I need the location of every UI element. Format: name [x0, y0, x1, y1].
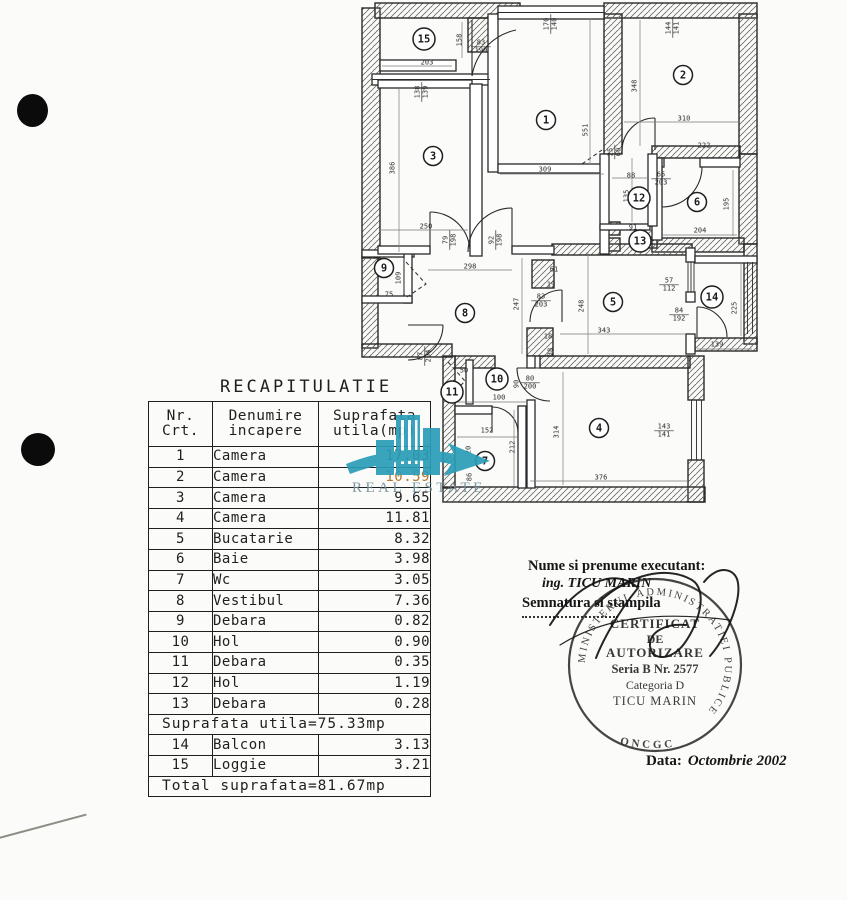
- svg-text:203: 203: [655, 179, 668, 187]
- svg-text:5: 5: [610, 297, 616, 309]
- dimension-label: 248: [578, 300, 586, 313]
- dimension-label: 212: [509, 441, 517, 454]
- cell-nr: 8: [149, 591, 213, 612]
- room-number-badge: 1: [537, 111, 556, 130]
- header-nr-line1: Nr.: [167, 408, 195, 424]
- svg-text:343: 343: [598, 327, 611, 335]
- svg-text:1: 1: [543, 115, 549, 127]
- cell-name: Hol: [213, 673, 319, 694]
- cell-area: 17.03: [319, 447, 431, 468]
- svg-text:15: 15: [418, 34, 431, 46]
- svg-text:83: 83: [537, 293, 545, 301]
- cell-area: 0.90: [319, 632, 431, 653]
- header-denumire-line2: incapere: [229, 423, 303, 439]
- dimension-label: 20: [465, 446, 473, 454]
- cell-name: Camera: [213, 467, 319, 488]
- cell-area: 0.82: [319, 611, 431, 632]
- svg-text:247: 247: [513, 298, 521, 311]
- table-row: 13Debara0.28: [149, 694, 431, 715]
- dimension-label: 87204: [417, 346, 433, 366]
- svg-text:212: 212: [509, 441, 517, 454]
- dimension-label: 139: [711, 341, 724, 349]
- svg-text:248: 248: [578, 300, 586, 313]
- cell-name: Balcon: [213, 735, 319, 756]
- svg-text:140: 140: [551, 18, 559, 31]
- room-number-badge: 5: [604, 293, 623, 312]
- svg-text:11: 11: [446, 387, 459, 399]
- dimension-label: 75: [385, 291, 393, 299]
- room-number-badge: 15: [413, 28, 435, 50]
- svg-text:141: 141: [673, 22, 681, 35]
- table-title: RECAPITULATIE: [220, 377, 432, 397]
- cell-name: Debara: [213, 611, 319, 632]
- cell-nr: 7: [149, 570, 213, 591]
- svg-text:204: 204: [425, 350, 433, 363]
- dimension-label: 298: [464, 263, 477, 271]
- dimension-label: 250: [420, 223, 433, 231]
- dimension-label: 143141: [654, 423, 674, 439]
- room-number-badge: 7: [476, 452, 495, 471]
- hole-punch-top: [17, 94, 48, 127]
- cell-nr: 13: [149, 694, 213, 715]
- dimension-label: 61: [550, 266, 558, 274]
- svg-text:192: 192: [673, 315, 686, 323]
- dimension-label: 38: [547, 348, 555, 356]
- svg-text:88: 88: [627, 172, 635, 180]
- cell-name: Camera: [213, 488, 319, 509]
- cell-area: 11.81: [319, 508, 431, 529]
- svg-text:158: 158: [456, 34, 464, 47]
- svg-text:222: 222: [698, 142, 711, 150]
- svg-text:203: 203: [421, 59, 434, 67]
- svg-text:143: 143: [658, 423, 671, 431]
- svg-text:60: 60: [615, 148, 623, 156]
- cell-name: Camera: [213, 508, 319, 529]
- svg-text:6: 6: [694, 197, 700, 209]
- recap-section: RECAPITULATIE Nr. Crt. Denumire incapere…: [148, 377, 432, 797]
- svg-text:309: 309: [539, 166, 552, 174]
- svg-text:61: 61: [550, 266, 558, 274]
- dimension-label: 88: [627, 172, 635, 180]
- dimension-label: 19: [547, 281, 555, 289]
- stamp-bottom-text: ONCGC: [619, 735, 675, 751]
- svg-text:139: 139: [422, 86, 430, 99]
- header-denumire: Denumire incapere: [213, 402, 319, 447]
- stamp-line-seria: Seria B Nr. 2577: [611, 662, 698, 676]
- dimension-label: 83199: [471, 39, 491, 55]
- cell-nr: 2: [149, 467, 213, 488]
- cell-name: Hol: [213, 632, 319, 653]
- cell-nr: 6: [149, 549, 213, 570]
- dimension-label: 204: [694, 227, 707, 235]
- hole-punch-bottom: [21, 433, 55, 466]
- dimension-label: 376: [595, 474, 608, 482]
- svg-text:386: 386: [389, 162, 397, 175]
- room-number-badge: 11: [441, 381, 463, 403]
- dimension-label: 343: [598, 327, 611, 335]
- svg-text:12: 12: [633, 193, 646, 205]
- header-nr: Nr. Crt.: [149, 402, 213, 447]
- svg-text:18: 18: [544, 333, 552, 341]
- svg-text:112: 112: [663, 285, 676, 293]
- svg-text:79: 79: [442, 236, 450, 244]
- cell-name: Vestibul: [213, 591, 319, 612]
- table-row: 15Loggie3.21: [149, 755, 431, 776]
- table-row: 5Bucatarie8.32: [149, 529, 431, 550]
- subtotal-row-text: Suprafata utila=75.33mp: [149, 714, 431, 735]
- cell-area: 1.19: [319, 673, 431, 694]
- svg-text:91: 91: [629, 224, 637, 232]
- dimension-label: 57112: [659, 277, 679, 293]
- cell-name: Camera: [213, 447, 319, 468]
- table-row: 14Balcon3.13: [149, 735, 431, 756]
- svg-text:50: 50: [460, 367, 468, 375]
- cell-area: 0.35: [319, 652, 431, 673]
- dimension-label: 2560: [607, 145, 623, 159]
- room-number-badge: 10: [486, 368, 508, 390]
- dimension-label: 309: [539, 166, 552, 174]
- dimension-label: 79198: [442, 230, 458, 250]
- svg-text:100: 100: [493, 394, 506, 402]
- cell-nr: 11: [149, 652, 213, 673]
- dimension-label: 170140: [543, 14, 559, 34]
- table-row: 7Wc3.05: [149, 570, 431, 591]
- svg-text:199: 199: [475, 47, 488, 55]
- cell-area: 3.13: [319, 735, 431, 756]
- svg-text:139: 139: [711, 341, 724, 349]
- cell-nr: 3: [149, 488, 213, 509]
- cell-name: Baie: [213, 549, 319, 570]
- table-row: 9Debara0.82: [149, 611, 431, 632]
- table-row: 1Camera17.03: [149, 447, 431, 468]
- cell-area: 3.98: [319, 549, 431, 570]
- dimension-label: 310: [678, 115, 691, 123]
- stamp-line-name: TICU MARIN: [613, 694, 697, 708]
- svg-text:38: 38: [547, 348, 555, 356]
- cell-nr: 9: [149, 611, 213, 632]
- cell-area: 8.32: [319, 529, 431, 550]
- dimension-label: 247: [513, 298, 521, 311]
- dimension-label: 551: [582, 124, 590, 137]
- dimension-label: 86: [466, 473, 474, 481]
- dimension-label: 144141: [665, 18, 681, 38]
- svg-text:25: 25: [607, 148, 615, 156]
- room-number-badge: 14: [701, 286, 723, 308]
- total-row: Total suprafata=81.67mp: [149, 776, 431, 797]
- dimension-label: 195: [723, 198, 731, 211]
- svg-text:83: 83: [477, 39, 485, 47]
- room-number-badge: 4: [590, 419, 609, 438]
- svg-text:195: 195: [723, 198, 731, 211]
- svg-text:376: 376: [595, 474, 608, 482]
- cell-area: 0.28: [319, 694, 431, 715]
- svg-text:310: 310: [678, 115, 691, 123]
- dimension-label: 109: [395, 272, 403, 285]
- cell-area: 3.21: [319, 755, 431, 776]
- svg-text:57: 57: [665, 277, 673, 285]
- subtotal-row: Suprafata utila=75.33mp: [149, 714, 431, 735]
- svg-text:65: 65: [657, 171, 665, 179]
- total-row-text: Total suprafata=81.67mp: [149, 776, 431, 797]
- table-row: 10Hol0.90: [149, 632, 431, 653]
- cell-nr: 4: [149, 508, 213, 529]
- dimension-label: 203: [421, 59, 434, 67]
- cell-nr: 15: [149, 755, 213, 776]
- authorization-stamp: MINISTERUL ADMINISTRATIEI PUBLICE ONCGC …: [500, 550, 830, 780]
- svg-text:551: 551: [582, 124, 590, 137]
- svg-text:8: 8: [462, 308, 468, 320]
- svg-text:19: 19: [547, 281, 555, 289]
- svg-text:170: 170: [543, 18, 551, 31]
- dimension-label: 158: [456, 34, 464, 47]
- dimension-label: 50: [460, 367, 468, 375]
- cell-nr: 12: [149, 673, 213, 694]
- svg-text:141: 141: [658, 431, 671, 439]
- svg-text:144: 144: [665, 22, 673, 35]
- table-row: 4Camera11.81: [149, 508, 431, 529]
- header-suprafata-line1: Suprafata: [333, 408, 416, 424]
- door-arcs: [406, 20, 727, 432]
- room-number-badge: 6: [688, 193, 707, 212]
- dimension-label: 386: [389, 162, 397, 175]
- cell-name: Debara: [213, 652, 319, 673]
- table-row: 2Camera10.59: [149, 467, 431, 488]
- dimension-label: 90: [513, 380, 521, 388]
- cell-name: Loggie: [213, 755, 319, 776]
- cell-area: 3.05: [319, 570, 431, 591]
- svg-text:348: 348: [631, 80, 639, 93]
- stamp-line-certificat: CERTIFICAT: [610, 616, 700, 631]
- dimension-label: 222: [698, 142, 711, 150]
- svg-text:75: 75: [385, 291, 393, 299]
- scanned-floorplan-page: 2031588319913813938625079198921982981701…: [0, 0, 847, 900]
- svg-text:3: 3: [430, 151, 436, 163]
- cell-name: Bucatarie: [213, 529, 319, 550]
- cell-name: Debara: [213, 694, 319, 715]
- dimension-label: 92198: [488, 230, 504, 250]
- dimension-lines: [380, 20, 752, 486]
- dimension-label: 91: [629, 224, 637, 232]
- svg-text:90: 90: [513, 380, 521, 388]
- room-number-badge: 9: [375, 259, 394, 278]
- svg-text:2: 2: [680, 70, 686, 82]
- cell-area: 7.36: [319, 591, 431, 612]
- svg-text:225: 225: [731, 302, 739, 315]
- svg-text:298: 298: [464, 263, 477, 271]
- svg-text:204: 204: [694, 227, 707, 235]
- dimension-label: 314: [553, 426, 561, 439]
- svg-text:84: 84: [675, 307, 683, 315]
- svg-text:138: 138: [414, 86, 422, 99]
- svg-text:87: 87: [417, 352, 425, 360]
- svg-text:314: 314: [553, 426, 561, 439]
- svg-text:20: 20: [465, 446, 473, 454]
- room-number-badge: 8: [456, 304, 475, 323]
- svg-text:250: 250: [420, 223, 433, 231]
- room-number-badge: 12: [628, 187, 650, 209]
- dimension-label: 84192: [669, 307, 689, 323]
- stamp-line-categoria: Categoria D: [626, 678, 685, 692]
- svg-text:10: 10: [491, 374, 504, 386]
- room-number-badge: 2: [674, 66, 693, 85]
- cell-name: Wc: [213, 570, 319, 591]
- recap-table: Nr. Crt. Denumire incapere Suprafata uti…: [148, 401, 431, 797]
- svg-text:13: 13: [634, 236, 647, 248]
- room-number-badge: 3: [424, 147, 443, 166]
- svg-text:198: 198: [450, 234, 458, 247]
- svg-text:203: 203: [535, 301, 548, 309]
- header-suprafata: Suprafata utila(mp): [319, 402, 431, 447]
- header-suprafata-line2: utila(mp): [333, 423, 416, 439]
- dimension-label: 135: [623, 190, 631, 203]
- stamp-center-text: CERTIFICAT DE AUTORIZARE Seria B Nr. 257…: [606, 616, 704, 708]
- svg-text:92: 92: [488, 236, 496, 244]
- svg-text:9: 9: [381, 263, 387, 275]
- header-denumire-line1: Denumire: [229, 408, 303, 424]
- table-row: 11Debara0.35: [149, 652, 431, 673]
- svg-text:7: 7: [482, 456, 488, 468]
- dimension-label: 100: [493, 394, 506, 402]
- svg-text:80: 80: [526, 375, 534, 383]
- table-row: 3Camera9.65: [149, 488, 431, 509]
- dimension-label: 80200: [520, 375, 540, 391]
- cell-nr: 10: [149, 632, 213, 653]
- cell-nr: 5: [149, 529, 213, 550]
- dimension-label: 138139: [414, 82, 430, 102]
- dimension-label: 348: [631, 80, 639, 93]
- table-row: 12Hol1.19: [149, 673, 431, 694]
- svg-text:109: 109: [395, 272, 403, 285]
- svg-text:14: 14: [706, 292, 719, 304]
- dimension-label: 18: [544, 333, 552, 341]
- table-row: 6Baie3.98: [149, 549, 431, 570]
- svg-text:152: 152: [481, 427, 494, 435]
- table-row: 8Vestibul7.36: [149, 591, 431, 612]
- dimension-label: 83203: [531, 293, 551, 309]
- svg-text:86: 86: [466, 473, 474, 481]
- svg-text:198: 198: [496, 234, 504, 247]
- dimension-label: 225: [731, 302, 739, 315]
- room-number-badge: 13: [629, 230, 651, 252]
- dimension-label: 152: [481, 427, 494, 435]
- stamp-line-autorizare: AUTORIZARE: [606, 645, 704, 660]
- svg-text:200: 200: [524, 383, 537, 391]
- page-corner-mark: [0, 814, 87, 841]
- cell-area: 9.65: [319, 488, 431, 509]
- dimension-label: 65203: [651, 171, 671, 187]
- table-header-row: Nr. Crt. Denumire incapere Suprafata uti…: [149, 402, 431, 447]
- svg-text:4: 4: [596, 423, 602, 435]
- cell-area: 10.59: [319, 467, 431, 488]
- cell-nr: 14: [149, 735, 213, 756]
- cell-nr: 1: [149, 447, 213, 468]
- svg-text:135: 135: [623, 190, 631, 203]
- header-nr-line2: Crt.: [162, 423, 199, 439]
